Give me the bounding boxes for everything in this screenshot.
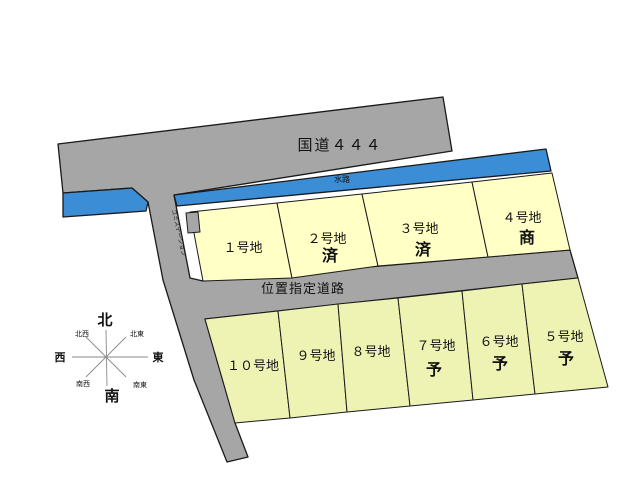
plot-map: ゴミステーション 国道４４４ 水路 位置指定道路 １号地 ２号地 済 ３号地 済…: [0, 0, 640, 480]
lot-3-label: ３号地: [399, 221, 438, 236]
lot-4-label: ４号地: [502, 210, 541, 225]
national-road-label: 国道４４４: [297, 137, 382, 154]
garbage-station-box: [186, 212, 200, 233]
lot-10-label: １０号地: [227, 358, 279, 373]
lot-7-status: 予: [426, 361, 442, 379]
compass-west-label: 西: [55, 351, 66, 364]
waterway-left: [63, 188, 148, 217]
lot-3-status: 済: [415, 240, 432, 259]
waterway-label: 水路: [334, 174, 350, 184]
compass-rose: 北 南 西 東 北西 北東 南西 南東: [55, 312, 165, 405]
lot-2-status: 済: [322, 246, 339, 265]
compass-east-label: 東: [153, 350, 165, 364]
compass-northeast-label: 北東: [130, 329, 144, 338]
lot-6-status: 予: [492, 355, 508, 373]
compass-south-label: 南: [104, 387, 119, 405]
lot-2-label: ２号地: [307, 231, 346, 246]
lot-1-label: １号地: [223, 240, 262, 255]
compass-northwest-label: 北西: [75, 330, 89, 338]
compass-southwest-label: 南西: [76, 379, 90, 388]
lot-4-status: 商: [519, 228, 535, 247]
designated-road-label: 位置指定道路: [261, 281, 345, 296]
lot-7-label: ７号地: [416, 338, 455, 353]
lot-9-label: ９号地: [296, 348, 335, 363]
lot-8-label: ８号地: [351, 344, 390, 359]
lot-6-label: ６号地: [479, 334, 518, 349]
compass-southeast-label: 南東: [133, 380, 147, 389]
compass-north-label: 北: [97, 312, 112, 329]
lot-5-label: ５号地: [544, 329, 583, 344]
lot-5-status: 予: [558, 350, 574, 368]
